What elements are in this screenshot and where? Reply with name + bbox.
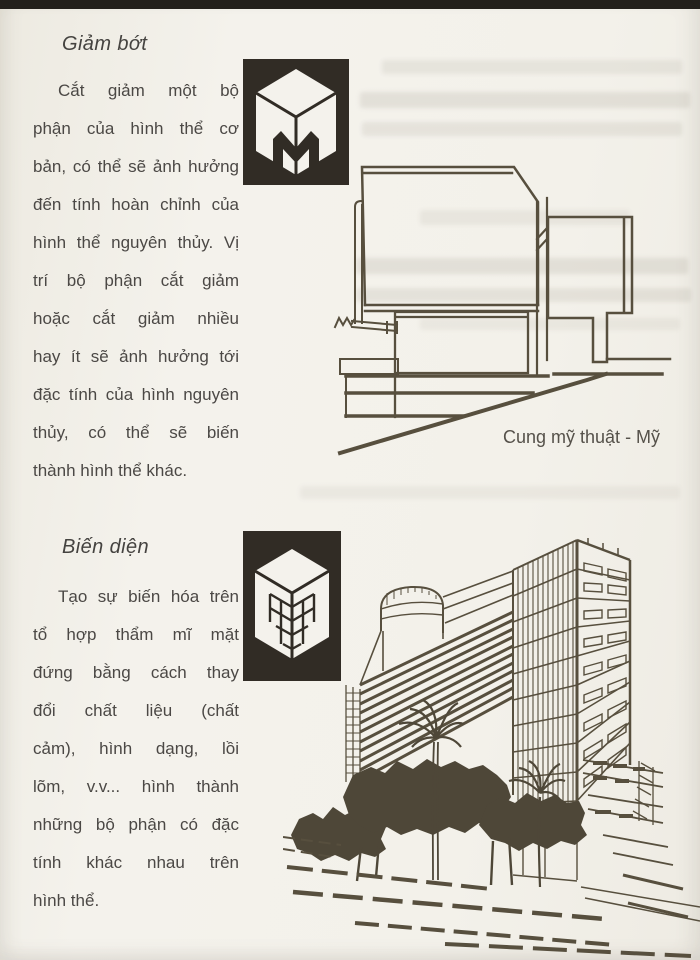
cube-surface-grid-icon [243, 531, 341, 681]
text-line: lõm, v.v... hình thành [33, 768, 239, 806]
curtain-wall [513, 540, 577, 835]
text-line: thủy, có thể sẽ biến [33, 414, 239, 452]
figure-office-tower-drawing [283, 535, 700, 958]
building-line-drawing [318, 155, 688, 465]
text-line: đặc tính của hình nguyên [33, 376, 239, 414]
scan-top-edge [0, 0, 700, 9]
bleed-through-artifact [300, 486, 680, 499]
cube-subtraction-icon [243, 59, 349, 185]
section-heading-giam-bot: Giảm bớt [62, 33, 147, 56]
figure-art-palace-drawing: Cung mỹ thuật - Mỹ [318, 155, 688, 465]
text-line: đứng bằng cách thay [33, 654, 239, 692]
paragraph-bien-dien: Tạo sự biến hóa trên tổ hợp thẩm mĩ mặt … [33, 578, 239, 920]
text-line: tính khác nhau trên [33, 844, 239, 882]
text-line: thành hình thể khác. [33, 452, 239, 490]
text-line: Cắt giảm một bộ [33, 72, 239, 110]
section-heading-bien-dien: Biến diện [62, 536, 149, 559]
text-line: phận của hình thể cơ [33, 110, 239, 148]
text-line: tổ hợp thẩm mĩ mặt [33, 616, 239, 654]
text-line: trí bộ phận cắt giảm [33, 262, 239, 300]
cube-surface-grid-icon-svg [243, 531, 341, 681]
paragraph-giam-bot: Cắt giảm một bộ phận của hình thể cơ bản… [33, 72, 239, 490]
text-line: những bộ phận có đặc [33, 806, 239, 844]
text-line: hình thể. [33, 882, 239, 920]
text-line: Tạo sự biến hóa trên [33, 578, 239, 616]
text-line: hoặc cắt giảm nhiều [33, 300, 239, 338]
slab-band-wing [346, 612, 513, 783]
text-line: cảm), hình dạng, lồi [33, 730, 239, 768]
text-line: hay ít sẽ ảnh hưởng tới [33, 338, 239, 376]
bleed-through-artifact [360, 92, 690, 108]
bleed-through-artifact [362, 122, 682, 136]
scanned-book-page: Giảm bớt Cắt giảm một bộ phận của hình t… [0, 0, 700, 960]
tower-line-drawing [283, 535, 700, 958]
cube-subtraction-icon-svg [243, 59, 349, 185]
text-line: hình thể nguyên thủy. Vị [33, 224, 239, 262]
text-line: bản, có thể sẽ ảnh hưởng [33, 148, 239, 186]
building-blocks [335, 167, 670, 417]
text-line: đến tính hoàn chỉnh của [33, 186, 239, 224]
text-line: đổi chất liệu (chất [33, 692, 239, 730]
figure-caption: Cung mỹ thuật - Mỹ [503, 427, 660, 448]
bleed-through-artifact [382, 60, 682, 74]
